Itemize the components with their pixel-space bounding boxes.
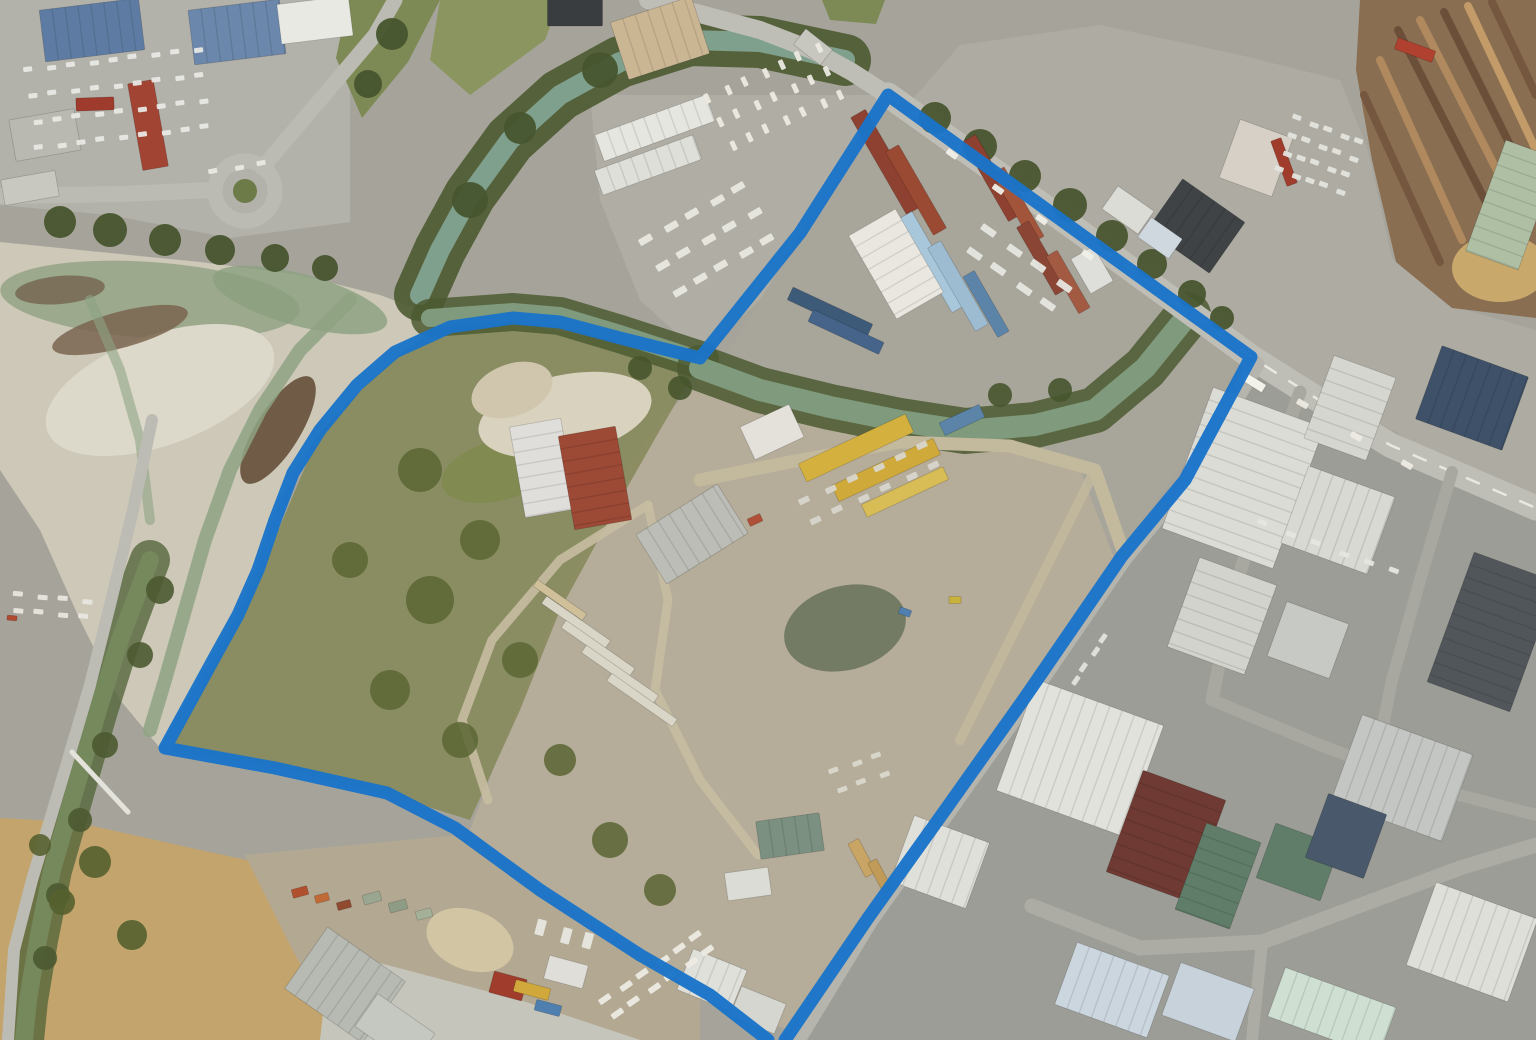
tree-blob [261,244,289,272]
tree-blob [149,224,181,256]
aerial-map-canvas[interactable] [0,0,1536,1040]
tree-blob [370,670,410,710]
tree-blob [205,235,235,265]
tree-blob [92,732,118,758]
tree-blob [452,182,488,218]
tree-blob [376,18,408,50]
tree-blob [29,834,51,856]
tree-blob [79,846,111,878]
white-shed-south-1 [724,867,771,901]
solar-roof-building-2 [188,0,286,65]
tree-blob [544,744,576,776]
tree-blob [442,722,478,758]
tree-blob [406,576,454,624]
tree-blob [592,822,628,858]
machinery-yellow [949,597,961,604]
tree-blob [1048,378,1072,402]
tree-blob [127,642,153,668]
tree-blob [117,920,147,950]
tree-blob [332,542,368,578]
tree-blob [312,255,338,281]
tree-blob [44,206,76,238]
aerial-map-viewport[interactable] [0,0,1536,1040]
tree-blob [460,520,500,560]
tree-blob [988,383,1012,407]
tree-blob [504,112,536,144]
tree-blob [93,213,127,247]
tree-blob [354,70,382,98]
tree-blob [628,356,652,380]
tree-blob [49,889,75,915]
tree-blob [644,874,676,906]
tree-blob [582,52,618,88]
tree-blob [502,642,538,678]
red-container-topleft [76,97,114,111]
tree-blob [68,808,92,832]
tree-blob [33,946,57,970]
dark-building-top [548,0,603,26]
roundabout-island [233,179,257,203]
tree-blob [398,448,442,492]
tree-blob [146,576,174,604]
tree-blob [668,376,692,400]
car-red-west-road [7,615,17,621]
